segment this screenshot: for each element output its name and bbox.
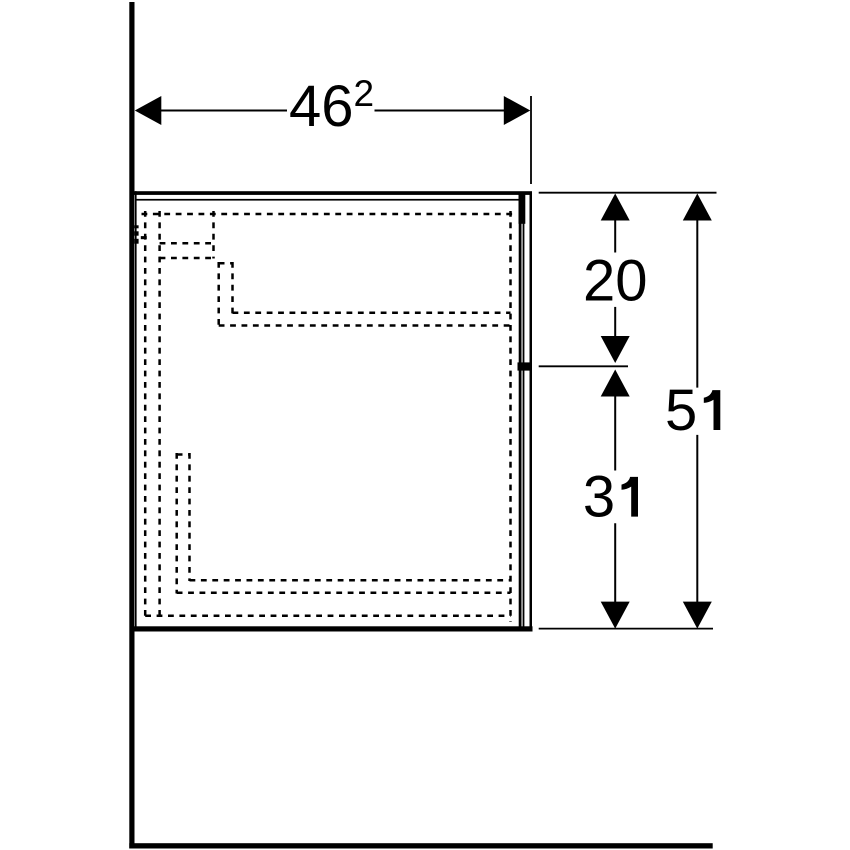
svg-text:20: 20 (583, 248, 648, 313)
svg-text:2: 2 (354, 73, 375, 114)
svg-text:5: 5 (665, 378, 697, 443)
svg-text:3: 3 (583, 465, 615, 530)
svg-text:46: 46 (289, 74, 354, 139)
